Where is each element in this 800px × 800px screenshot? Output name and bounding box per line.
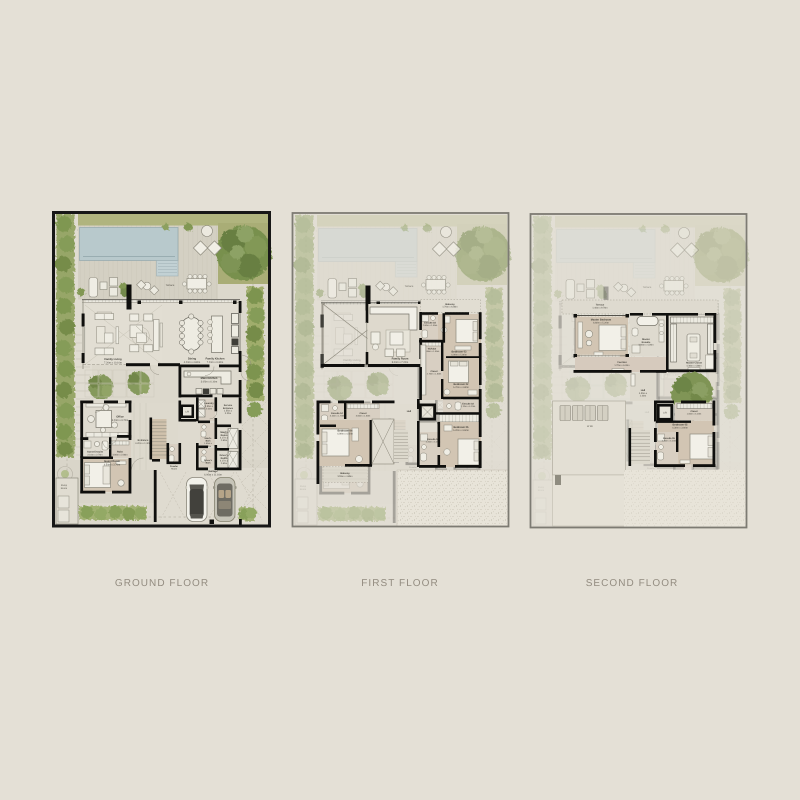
- svg-text:W RF: W RF: [587, 425, 594, 428]
- svg-text:5.20m x 3.60m: 5.20m x 3.60m: [453, 429, 469, 432]
- svg-text:Closet: Closet: [430, 370, 437, 373]
- svg-text:2.80m: 2.80m: [221, 462, 227, 465]
- svg-text:Closet: Closet: [359, 412, 366, 415]
- svg-text:3.00m x 2.00m: 3.00m x 2.00m: [112, 453, 127, 456]
- svg-text:Bath: Bath: [206, 440, 212, 443]
- svg-text:Balcony: Balcony: [340, 472, 350, 475]
- svg-text:SECOND FLOOR: SECOND FLOOR: [586, 578, 679, 589]
- svg-text:Room: Room: [61, 487, 67, 490]
- svg-text:3.10m x 1.70m: 3.10m x 1.70m: [330, 415, 345, 418]
- svg-text:2.00m: 2.00m: [206, 407, 212, 410]
- svg-text:2.55m x: 2.55m x: [205, 405, 214, 408]
- svg-text:3.20m x 3.70m: 3.20m x 3.70m: [112, 419, 129, 422]
- svg-text:Robe: Robe: [117, 451, 124, 454]
- svg-text:1.70m x 6.00m: 1.70m x 6.00m: [442, 306, 457, 309]
- svg-text:2.80m: 2.80m: [221, 439, 227, 442]
- svg-text:GROUND FLOOR: GROUND FLOOR: [115, 578, 209, 589]
- svg-text:4.30m x 3.60m: 4.30m x 3.60m: [672, 427, 688, 430]
- svg-text:3.60m x 4.20m: 3.60m x 4.20m: [638, 344, 653, 347]
- svg-text:1.55m x: 1.55m x: [204, 442, 213, 445]
- svg-text:4.00m x: 4.00m x: [639, 392, 648, 395]
- svg-text:1.70m x 6.40m: 1.70m x 6.40m: [614, 364, 629, 367]
- svg-text:Ensuite: Ensuite: [642, 341, 651, 344]
- svg-text:Ensuite 02: Ensuite 02: [462, 403, 474, 406]
- svg-text:6.60m x 5.20m: 6.60m x 5.20m: [593, 322, 609, 325]
- svg-text:3.17m x: 3.17m x: [220, 436, 229, 439]
- svg-text:L/R: L/R: [185, 410, 189, 413]
- svg-text:Balcony: Balcony: [445, 303, 455, 306]
- svg-text:Room: Room: [221, 434, 228, 437]
- svg-text:2.20m x 4.20m: 2.20m x 4.20m: [662, 440, 677, 443]
- svg-text:4.00m x 5.80m: 4.00m x 5.80m: [451, 354, 467, 357]
- svg-text:2.80m x 1.55m: 2.80m x 1.55m: [423, 324, 438, 327]
- svg-text:3.17m x: 3.17m x: [220, 459, 229, 462]
- svg-text:1.00m x 4.20m: 1.00m x 4.20m: [687, 413, 702, 416]
- svg-text:Ensuite 05: Ensuite 05: [663, 437, 675, 440]
- svg-text:Room: Room: [171, 468, 177, 471]
- svg-text:Corridor: Corridor: [617, 361, 627, 364]
- svg-text:3.05m x 6.10m: 3.05m x 6.10m: [201, 380, 218, 383]
- svg-text:Terrace: Terrace: [596, 304, 605, 307]
- svg-text:3.00m x 1.80m: 3.00m x 1.80m: [356, 415, 371, 418]
- svg-text:Laundry: Laundry: [204, 402, 214, 405]
- svg-text:3.30m: 3.30m: [225, 412, 231, 415]
- svg-text:Driver's: Driver's: [204, 459, 213, 462]
- svg-text:1.40m x 9.70m: 1.40m x 9.70m: [592, 306, 607, 309]
- svg-text:7.20m x 3.30m: 7.20m x 3.30m: [207, 361, 224, 364]
- svg-text:2.75m x 1.80m: 2.75m x 1.80m: [427, 373, 442, 376]
- svg-text:4.20m x 4.80m: 4.20m x 4.80m: [184, 361, 201, 364]
- svg-text:4.00m x 4.50m: 4.00m x 4.50m: [337, 433, 353, 436]
- svg-text:Guest Ensuite: Guest Ensuite: [87, 451, 104, 454]
- svg-text:4.20m x 1.40m: 4.20m x 1.40m: [135, 442, 151, 445]
- svg-text:1.55m x: 1.55m x: [224, 410, 233, 413]
- svg-text:4.50m x 3.70m: 4.50m x 3.70m: [104, 463, 121, 466]
- svg-text:Hall: Hall: [641, 389, 646, 392]
- svg-text:FIRST FLOOR: FIRST FLOOR: [361, 578, 438, 589]
- svg-text:6.00m x 11.16m: 6.00m x 11.16m: [204, 473, 222, 476]
- svg-text:1.70m x 4.20m: 1.70m x 4.20m: [461, 405, 476, 408]
- svg-text:Powder: Powder: [170, 465, 178, 468]
- svg-text:Master Closet: Master Closet: [686, 362, 702, 365]
- svg-text:3.55m x 4.85m: 3.55m x 4.85m: [337, 475, 352, 478]
- svg-text:2.85m x 1.55m: 2.85m x 1.55m: [425, 350, 440, 353]
- svg-text:5.00m x 7.20m: 5.00m x 7.20m: [392, 361, 409, 364]
- svg-text:2.10m x 2.70m: 2.10m x 2.70m: [87, 453, 102, 456]
- svg-text:7.20m x 10.10m: 7.20m x 10.10m: [104, 361, 122, 364]
- svg-text:W.Robe: W.Robe: [428, 348, 437, 351]
- svg-text:4.36m x 4.80m: 4.36m x 4.80m: [686, 364, 701, 367]
- svg-text:5.70m x 4.80m: 5.70m x 4.80m: [453, 386, 469, 389]
- svg-text:Closet: Closet: [690, 410, 697, 413]
- svg-text:Terrace: Terrace: [166, 284, 175, 287]
- svg-text:Hall: Hall: [407, 410, 412, 413]
- svg-text:Maid's: Maid's: [205, 437, 213, 440]
- svg-text:1.40m: 1.40m: [640, 394, 646, 397]
- svg-text:Ensuite 04: Ensuite 04: [331, 412, 343, 415]
- svg-text:Bath: Bath: [206, 462, 212, 465]
- svg-text:Ensuite 03: Ensuite 03: [424, 322, 436, 325]
- svg-text:Entrance: Entrance: [223, 407, 234, 410]
- svg-text:L/R: L/R: [663, 412, 667, 415]
